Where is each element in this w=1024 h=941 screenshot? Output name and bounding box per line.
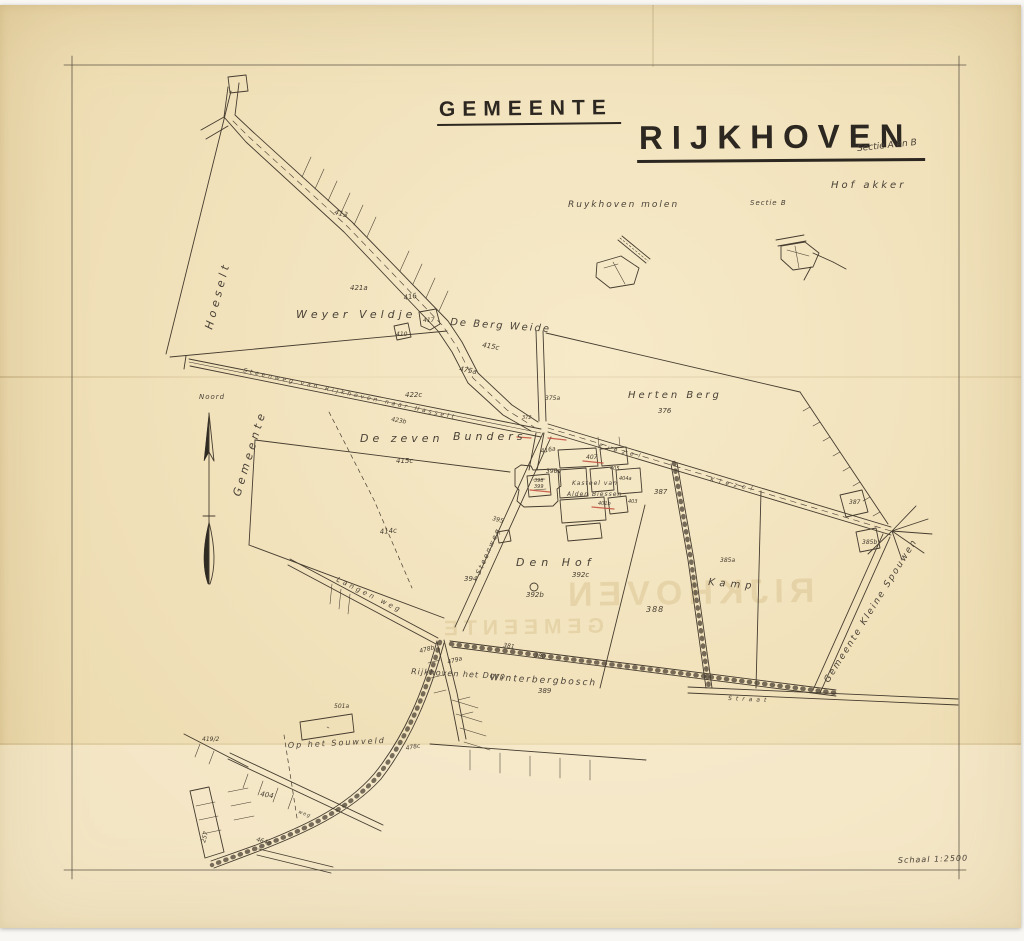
map-label-p372: 372 bbox=[522, 415, 532, 421]
map-label-p387: 387 bbox=[654, 488, 668, 496]
map-label-de-zeven: De zeven bbox=[360, 432, 444, 445]
map-label-p407: 407 bbox=[586, 454, 598, 461]
map-label-p416a: 416a bbox=[540, 445, 556, 455]
map-label-p257: 257 bbox=[200, 830, 210, 843]
map-label-p475a: 475a bbox=[459, 365, 478, 376]
map-label-p399: 399 bbox=[534, 484, 544, 490]
map-label-p422c: 422c bbox=[405, 391, 422, 399]
map-label-hoeselt: Hoeselt bbox=[202, 260, 233, 331]
map-label-p410: 410 bbox=[396, 331, 408, 338]
map-label-weg-mark: weg bbox=[297, 809, 312, 819]
map-label-p387b: 387 bbox=[849, 499, 861, 506]
map-label-p421a: 421a bbox=[350, 284, 368, 292]
map-label-p389: 389 bbox=[538, 687, 552, 695]
map-label-p413: 413 bbox=[333, 208, 348, 219]
map-label-noord: Noord bbox=[199, 393, 225, 401]
map-label-p392b: 392b bbox=[526, 591, 544, 599]
map-label-kasteel-line2: Alden Biessen bbox=[566, 491, 622, 498]
map-label-p423b: 423b bbox=[391, 416, 407, 426]
map-label-p380: 380 bbox=[534, 652, 546, 661]
compass-rose bbox=[203, 413, 215, 584]
map-label-schaal: Schaal 1:2500 bbox=[898, 854, 969, 865]
map-label-p405: 405 bbox=[610, 466, 620, 472]
parcel-boundaries bbox=[166, 75, 888, 858]
map-label-sectie-b: Sectie B bbox=[750, 199, 787, 207]
map-label-p403: 403 bbox=[628, 499, 638, 505]
map-label-gemeente-boundary: Gemeente bbox=[230, 408, 269, 497]
map-label-p417: 417 bbox=[423, 317, 435, 324]
map-label-p478b: 478b bbox=[419, 644, 436, 655]
map-label-p501a: 501a bbox=[334, 703, 349, 710]
map-label-p404: 404 bbox=[260, 790, 275, 800]
map-label-bunders: Bunders bbox=[453, 430, 527, 443]
map-label-de-berg-weide: De Berg Weide bbox=[450, 317, 552, 335]
map-label-p388: 388 bbox=[646, 605, 664, 614]
map-label-p416: 416 bbox=[403, 292, 418, 302]
map-label-ruykhoven-molen: Ruykhoven molen bbox=[568, 200, 679, 210]
inset-hof-akker bbox=[776, 235, 846, 280]
map-label-straat: Straat bbox=[728, 695, 771, 704]
map-label-kiezel2: Kiezel bbox=[710, 476, 758, 494]
map-label-p392c: 392c bbox=[572, 571, 589, 579]
map-label-p401b: 401b bbox=[598, 501, 611, 507]
map-label-p375a: 375a bbox=[545, 395, 560, 402]
map-label-steenweg-hasselt: Steenweg van Rijkhoven naar Hasselt bbox=[243, 367, 458, 421]
map-label-p415c2: 415c bbox=[396, 457, 413, 465]
map-label-p415c: 415c bbox=[482, 341, 500, 352]
map-label-p385a: 385a bbox=[720, 557, 735, 564]
map-label-p385b: 385b bbox=[862, 539, 877, 546]
map-label-p479a: 479a bbox=[447, 655, 464, 666]
inset-ruykhoven-molen bbox=[596, 236, 650, 288]
map-label-p376: 376 bbox=[658, 407, 672, 415]
map-label-p395: 395 bbox=[491, 515, 504, 525]
cadastral-map-canvas: HoeseltGemeenteNoordWeyer Veldje421a4134… bbox=[0, 0, 1024, 941]
map-label-p404a: 404a bbox=[619, 476, 632, 482]
map-label-den-hof: Den Hof bbox=[516, 556, 596, 569]
map-labels: HoeseltGemeenteNoordWeyer Veldje421a4134… bbox=[199, 180, 968, 865]
map-label-op-het-souwveld: Op het Souwveld bbox=[288, 736, 386, 750]
map-label-kasteel-line1: Kasteel van bbox=[572, 480, 618, 487]
map-label-herten-berg: Herten Berg bbox=[628, 390, 722, 401]
map-label-p478c: 478c bbox=[405, 742, 421, 752]
scanned-map-sheet: GEMEENTE RIJKHOVEN GEMEENTE RIJKHOVEN Se… bbox=[0, 0, 1024, 941]
map-label-p414c: 414c bbox=[379, 527, 397, 536]
map-label-steenweg-vert: Steenweg bbox=[475, 526, 503, 576]
map-label-hof-akker: Hof akker bbox=[831, 180, 906, 191]
map-label-p419-2: 419/2 bbox=[202, 736, 219, 743]
map-label-kamp: Kamp bbox=[708, 577, 757, 592]
map-label-p396a: 396a bbox=[546, 468, 561, 475]
map-label-weyer-veldje: Weyer Veldje bbox=[296, 308, 416, 321]
map-label-p394: 394 bbox=[464, 575, 477, 583]
